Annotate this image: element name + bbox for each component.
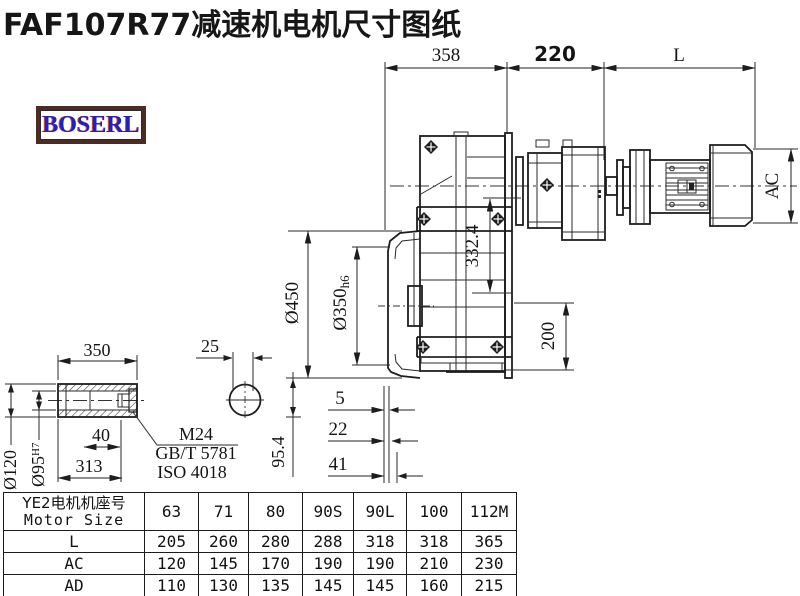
dim-depth-40: 40 [92, 425, 110, 445]
dim-motor-diameter: AC [762, 173, 783, 199]
table-header-row: YE2电机机座号 Motor Size 63 71 80 90S 90L 100… [4, 493, 517, 531]
hollow-shaft-detail: 350 Ø120 Ø95H7 40 313 M24 GB/T 5781 ISO … [0, 340, 238, 490]
dim-spigot-diameter: Ø350h6 [330, 275, 352, 331]
table-cell: 160 [407, 575, 462, 596]
table-cell: 260 [199, 531, 249, 553]
table-cell: 280 [249, 531, 303, 553]
dimension-steps: 5 22 41 [328, 388, 423, 476]
adapter-housing [516, 140, 605, 240]
fan-cover [710, 145, 752, 226]
table-cell: 135 [249, 575, 303, 596]
dim-step-22: 22 [329, 419, 348, 440]
standard-gb-label: GB/T 5781 [155, 443, 236, 463]
dim-flange-diameter: Ø450 [282, 282, 303, 324]
bolt-icon [491, 212, 505, 226]
table-cell: 190 [354, 553, 407, 575]
table-row-L: L 205 260 280 288 318 318 365 [4, 531, 517, 553]
table-cell: 215 [462, 575, 517, 596]
dim-adapter-length: 220 [534, 42, 576, 66]
shaft-cross-section: 25 [196, 336, 272, 419]
bore-tolerance: H7 [30, 442, 42, 456]
dim-step-41: 41 [329, 454, 348, 475]
header-cn: YE2电机机座号 [4, 495, 144, 512]
table-cell-frame-size: 63 [145, 493, 199, 531]
bolt-icon [540, 178, 554, 192]
dim-shaft-length: 350 [84, 340, 111, 360]
technical-drawing-page: FAF107R77减速机电机尺寸图纸 BOSERL [0, 0, 800, 596]
row-label: L [4, 531, 145, 553]
table-cell: 145 [354, 575, 407, 596]
table-cell-frame-size: 71 [199, 493, 249, 531]
header-en: Motor Size [4, 512, 144, 528]
table-cell: 170 [249, 553, 303, 575]
motor-side-view [650, 145, 752, 226]
bolt-label: M24 [179, 424, 213, 444]
table-cell-frame-size: 100 [407, 493, 462, 531]
table-cell: 130 [199, 575, 249, 596]
dim-center-height: 332.4 [462, 224, 483, 267]
spigot-tolerance: h6 [337, 275, 352, 289]
table-row-AC: AC 120 145 170 190 190 210 230 [4, 553, 517, 575]
table-cell: 145 [303, 575, 354, 596]
dim-length-313: 313 [76, 456, 103, 476]
table-cell-frame-size: 90S [303, 493, 354, 531]
dim-bore-dia: Ø95H7 [28, 442, 48, 487]
dimension-95-4: 95.4 [268, 372, 301, 477]
table-cell: 120 [145, 553, 199, 575]
row-label: AC [4, 553, 145, 575]
table-row-AD: AD 110 130 135 145 145 160 215 [4, 575, 517, 596]
spigot-value: Ø350 [330, 288, 351, 330]
table-cell: 145 [199, 553, 249, 575]
table-cell-frame-size: 112M [462, 493, 517, 531]
dim-shaft-center-height: 95.4 [268, 436, 288, 468]
row-label: AD [4, 575, 145, 596]
dim-motor-length: L [673, 45, 685, 66]
dimension-200: 200 [506, 303, 574, 370]
table-cell: 230 [462, 553, 517, 575]
standard-iso-label: ISO 4018 [157, 462, 227, 482]
dim-gearbox-width: 358 [432, 45, 461, 66]
table-header-motor-size: YE2电机机座号 Motor Size [4, 493, 145, 531]
table-cell-frame-size: 80 [249, 493, 303, 531]
table-cell: 210 [407, 553, 462, 575]
motor-dimension-table: YE2电机机座号 Motor Size 63 71 80 90S 90L 100… [3, 492, 517, 596]
dim-width-25: 25 [201, 336, 219, 356]
dim-shaft-outer-dia: Ø120 [0, 450, 20, 490]
table-cell: 318 [407, 531, 462, 553]
table-cell-frame-size: 90L [354, 493, 407, 531]
bore-value: Ø95 [28, 456, 48, 487]
table-cell: 288 [303, 531, 354, 553]
bolt-icon [424, 140, 438, 154]
table-cell: 205 [145, 531, 199, 553]
bolt-icon [416, 340, 430, 354]
dim-offset-200: 200 [538, 322, 559, 351]
dim-step-5: 5 [335, 388, 345, 409]
motor-coupling [606, 150, 650, 224]
table-cell: 365 [462, 531, 517, 553]
table-cell: 190 [303, 553, 354, 575]
table-cell: 318 [354, 531, 407, 553]
table-cell: 110 [145, 575, 199, 596]
bolt-icon [490, 340, 504, 354]
